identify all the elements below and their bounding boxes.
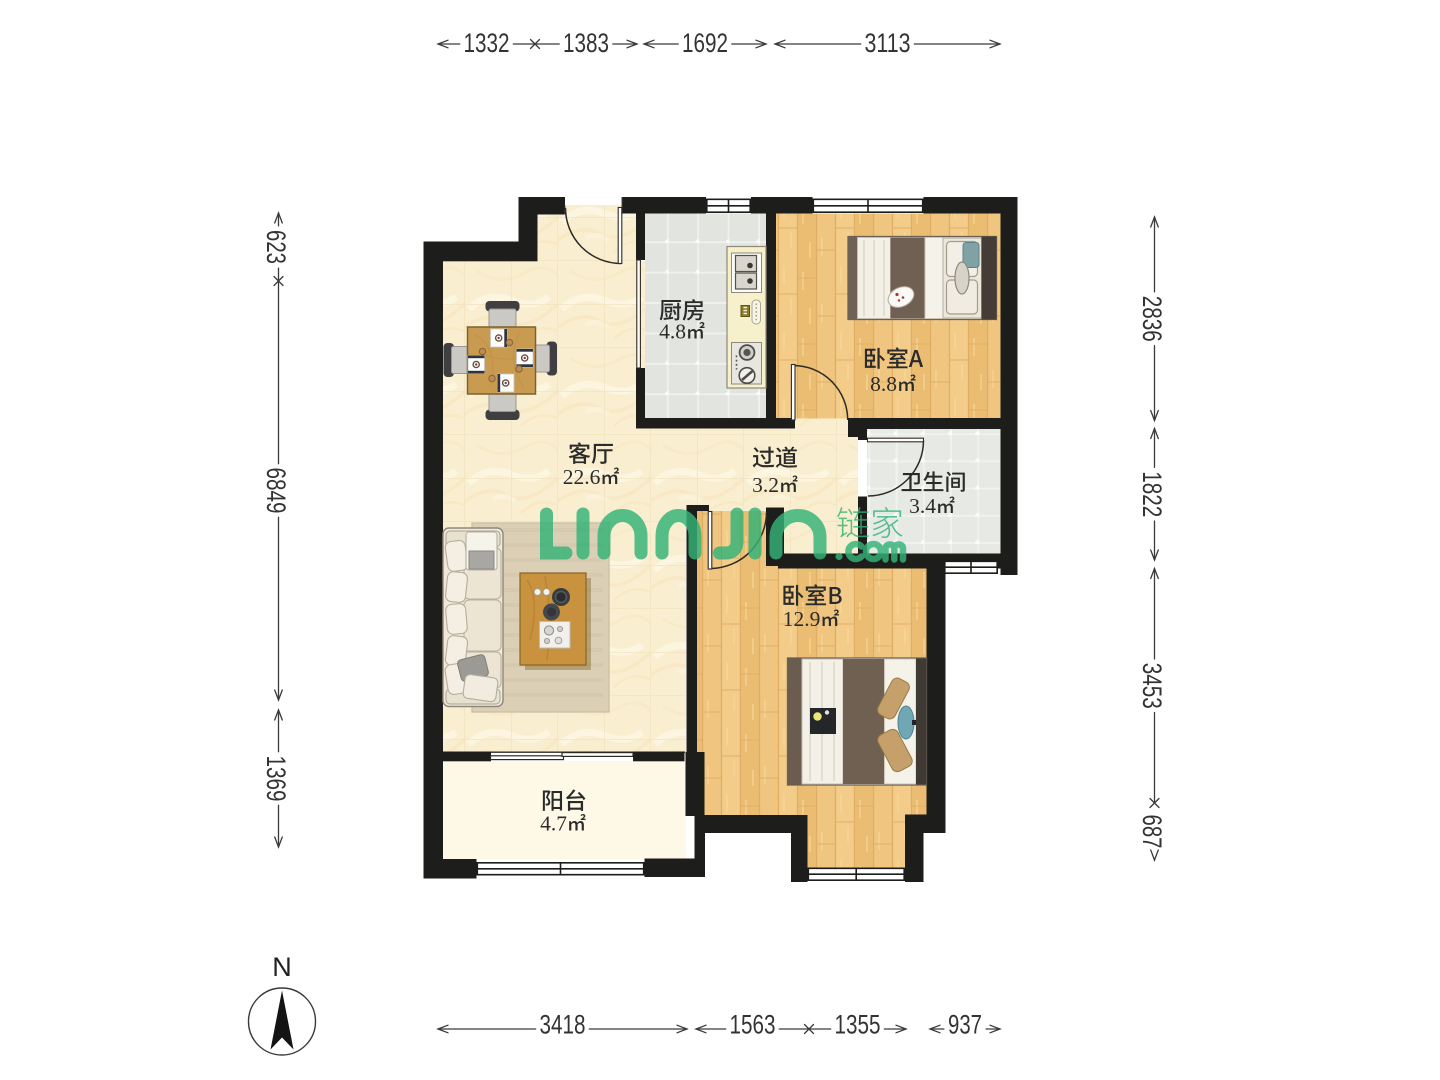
svg-text:1563: 1563 (730, 1010, 776, 1040)
svg-text:3.4: 3.4 (909, 494, 936, 518)
svg-text:3453: 3453 (1137, 663, 1167, 709)
svg-text:2836: 2836 (1137, 296, 1167, 342)
svg-text:3113: 3113 (865, 28, 911, 58)
svg-text:3.2: 3.2 (752, 473, 779, 497)
svg-text:937: 937 (948, 1010, 982, 1040)
svg-text:1369: 1369 (261, 756, 291, 802)
svg-text:22.6: 22.6 (563, 465, 601, 489)
svg-text:1692: 1692 (682, 28, 728, 58)
svg-text:623: 623 (261, 230, 291, 264)
svg-text:3418: 3418 (540, 1010, 586, 1040)
svg-text:4.7: 4.7 (540, 812, 567, 836)
svg-text:N: N (272, 952, 292, 982)
svg-text:4.8: 4.8 (659, 320, 686, 344)
svg-text:1355: 1355 (835, 1010, 881, 1040)
svg-text:12.9: 12.9 (783, 607, 821, 631)
svg-text:1822: 1822 (1137, 471, 1167, 517)
svg-text:1332: 1332 (464, 28, 510, 58)
svg-text:8.8: 8.8 (870, 372, 897, 396)
svg-text:6849: 6849 (261, 468, 291, 514)
svg-text:1383: 1383 (563, 28, 609, 58)
svg-text:687: 687 (1137, 815, 1167, 849)
